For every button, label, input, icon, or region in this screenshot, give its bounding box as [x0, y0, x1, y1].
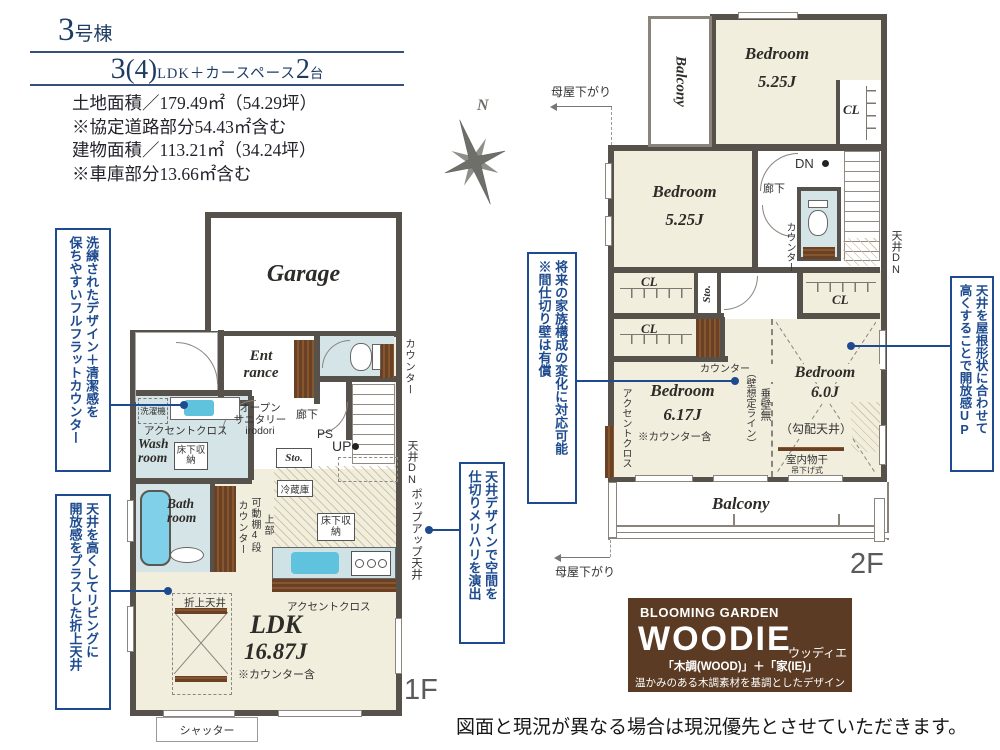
bedroom-d-label: Bedroom 6.0J	[770, 364, 880, 402]
compass-rose: N	[433, 94, 518, 212]
plan-summary: 3(4)LDK＋カースペース2台	[30, 53, 404, 85]
callout-roof-ceiling: 天井を屋根形状に合わせて 高くすることで開放感UP	[950, 276, 994, 472]
callout-line	[111, 590, 169, 592]
bedroom-b-label: Bedroom 5.25J	[622, 182, 747, 230]
stove-burner-icon	[378, 559, 387, 568]
moya-dashed-line	[611, 107, 612, 145]
logo-formula: 「木調(WOOD)」＋「家(IE)」	[628, 658, 852, 674]
toilet-bowl-icon	[350, 343, 372, 371]
sink-icon	[184, 400, 214, 416]
stairs-up-label: UP	[332, 438, 351, 454]
closet-a-label: CL	[843, 102, 860, 118]
bedroom-c-note: ※カウンター含	[638, 429, 712, 444]
callout-folded-ceiling: 天井を高くしてリビングに 開放感をプラスした折上天井	[55, 494, 111, 710]
area-info: 土地面積／179.49㎡（54.29坪） ※協定道路部分54.43㎡含む 建物面…	[72, 92, 317, 186]
ldk-note-label: ※カウンター含	[238, 666, 315, 682]
balcony-inner-rail	[614, 525, 882, 527]
callout-dot	[731, 377, 739, 385]
moya-dashed-line	[610, 540, 611, 557]
callout-dot	[180, 401, 188, 409]
sloped-ceiling-hatch	[843, 238, 877, 266]
window	[879, 425, 886, 465]
rooms-unit: LDK＋カースペース	[157, 66, 296, 82]
accent-wall-2f	[605, 426, 614, 478]
toilet-counter-1f	[380, 344, 394, 378]
bedroom-d-note: （勾配天井）	[780, 420, 852, 437]
callout-line	[852, 345, 950, 347]
storage-2f-label: Sto.	[701, 279, 715, 309]
window	[635, 475, 693, 482]
wall	[752, 145, 758, 273]
bedroom-a-label: Bedroom 5.25J	[722, 44, 832, 92]
moya-arrow-line	[554, 106, 612, 107]
closet-label: CL	[641, 274, 658, 290]
logo-tagline: 温かみのある木調素材を基調としたデザイン	[628, 675, 852, 690]
closet-rail	[806, 282, 876, 292]
counter-label-1f: カウンター	[403, 338, 418, 396]
window	[605, 216, 612, 246]
indoor-drying-bar	[778, 447, 844, 451]
land-area-note: ※協定道路部分54.43㎡含む	[72, 116, 317, 140]
compass-north-label: N	[476, 97, 490, 114]
rooms-paren: (4)	[126, 54, 157, 84]
moya-sagari-bottom-label: 母屋下がり	[555, 563, 615, 580]
counter-shelf-2f	[696, 319, 720, 357]
rooms-number: 3	[111, 52, 126, 85]
wall	[314, 336, 320, 404]
kitchen-accent-wall	[272, 579, 396, 592]
brand-logo-box: BLOOMING GARDEN WOODIE ウッディエ 「木調(WOOD)」＋…	[628, 598, 852, 692]
window	[278, 710, 362, 717]
hallway-label-1f: 廊下	[296, 406, 318, 422]
cars-unit: 台	[310, 66, 324, 81]
ldk-label: LDK	[250, 610, 302, 640]
bath-stool-icon	[170, 547, 204, 563]
window	[879, 330, 886, 370]
shelf-counter-label: カウンター	[234, 500, 249, 555]
balcony-post	[874, 498, 885, 542]
compass-main-star	[433, 109, 518, 212]
closet-rail	[866, 86, 876, 140]
garage-room: Garage	[205, 212, 402, 337]
stove-burner-icon	[355, 559, 364, 568]
indoor-drying-note: 吊下げ式	[791, 465, 823, 476]
wall-line-label: （壁想定ライン）	[742, 368, 757, 448]
kitchen-sink-icon	[291, 552, 339, 574]
closet-label: CL	[832, 292, 849, 308]
building-area: 建物面積／113.21㎡（34.24坪）	[72, 139, 317, 163]
arrow-left-icon	[550, 103, 557, 111]
header-divider-bottom	[30, 84, 404, 86]
callout-dot	[164, 587, 172, 595]
balcony-top: Balcony	[648, 16, 712, 147]
balcony-outer-rail	[608, 532, 889, 539]
callout-line	[429, 529, 459, 531]
wall	[136, 478, 252, 484]
balcony-tick	[733, 514, 735, 526]
callout-line	[111, 404, 185, 406]
balcony-top-label: Balcony	[672, 56, 689, 107]
popup-ceiling-label: ポップアップ天井	[408, 488, 424, 580]
staircase-1f	[352, 384, 395, 464]
brand-name: BLOOMING GARDEN	[640, 605, 779, 620]
shoe-cabinet	[294, 340, 314, 398]
building-suffix: 号棟	[75, 24, 113, 45]
balcony-tick	[838, 514, 840, 526]
ceiling-dn-label-2f: 天井DN	[888, 230, 904, 276]
toilet-counter-2f	[803, 247, 835, 259]
building-number: 3	[58, 12, 75, 48]
floorplan-page: 3号棟 3(4)LDK＋カースペース2台 土地面積／179.49㎡（54.29坪…	[0, 0, 1000, 750]
ps-label: PS	[317, 427, 333, 441]
disclaimer-text: 図面と現況が異なる場合は現況優先とさせていただきます。	[456, 712, 967, 739]
window	[713, 475, 768, 482]
entrance-label: Ent rance	[232, 348, 290, 382]
window	[395, 618, 402, 674]
storage-box-1f: Sto.	[276, 448, 312, 468]
movable-shelf-1f	[214, 486, 236, 572]
cars-number: 2	[296, 54, 310, 85]
toilet-bowl-icon	[808, 210, 828, 236]
land-area: 土地面積／179.49㎡（54.29坪）	[72, 92, 317, 116]
shelf-movable-label: 可動棚4段	[247, 497, 262, 553]
ceiling-dn-label-1f: 天井DN	[404, 440, 420, 486]
callout-dot	[425, 526, 433, 534]
stairs-up-dot	[352, 443, 359, 450]
window	[127, 606, 134, 652]
wall	[797, 267, 803, 319]
wall	[346, 382, 352, 440]
callout-line	[577, 380, 737, 382]
underfloor-storage-kitchen: 床下収納	[317, 513, 355, 541]
floor1-label: 1F	[404, 674, 438, 707]
arrow-left-icon	[554, 554, 561, 562]
floor2-label: 2F	[850, 548, 884, 581]
underfloor-storage-wash: 床下収納	[174, 442, 208, 470]
stairs-dn-label: DN	[795, 156, 814, 171]
wall	[797, 313, 880, 319]
callout-partition: 将来の家族構成の変化に対応可能 ※間仕切り壁は有償	[527, 252, 577, 504]
fridge-space: 冷蔵庫	[277, 480, 313, 497]
wash-room-label: Wash room	[138, 437, 169, 465]
toilet-tank-icon	[808, 200, 828, 208]
logo-wordmark: WOODIE	[638, 620, 792, 659]
counter-label-2f: カウンター	[782, 222, 797, 272]
raised-ceiling-label: 折上天井	[184, 595, 226, 610]
ldk-size-label: 16.87J	[244, 639, 307, 665]
garage-label: Garage	[267, 261, 340, 288]
window	[163, 710, 235, 717]
wall	[136, 390, 252, 396]
balcony-post	[608, 482, 617, 538]
closet-label: CL	[641, 321, 658, 337]
wall	[612, 267, 880, 273]
accent-cloth-label-2f: アクセントクロス	[618, 388, 633, 468]
callout-full-flat-counter: 洗練されたデザイン＋清潔感を 保ちやすいフルフラットカウンター	[55, 228, 111, 472]
window	[127, 500, 134, 542]
window	[738, 12, 798, 19]
hallway-label-2f: 廊下	[763, 180, 785, 196]
stove-icon	[351, 551, 391, 576]
toilet-tank-icon	[372, 344, 381, 370]
window	[788, 475, 843, 482]
raised-ceiling-cross	[174, 612, 228, 674]
ceiling-beam	[175, 676, 227, 682]
callout-dot	[847, 342, 855, 350]
building-area-note: ※車庫部分13.66㎡含む	[72, 163, 317, 187]
stairs-dn-dot	[822, 160, 829, 167]
wall	[720, 317, 725, 359]
stove-burner-icon	[367, 559, 376, 568]
moya-arrow-line	[558, 557, 610, 558]
window	[605, 163, 612, 199]
ceiling-dn-zone	[338, 457, 398, 482]
balcony-bottom-label: Balcony	[712, 494, 770, 514]
callout-ceiling-design: 天井デザインで空間を 仕切りメリハリを演出	[459, 462, 505, 644]
building-title: 3号棟	[58, 12, 113, 49]
moya-sagari-top-label: 母屋下がり	[551, 83, 611, 100]
shelf-upper-label: 上部	[260, 514, 275, 536]
bath-room-label: Bath room	[167, 497, 196, 525]
open-sanitary-label: オープン サニタリー irodori	[230, 403, 290, 438]
bedroom-c-label: Bedroom 6.17J	[625, 381, 740, 425]
shutter-label: シャッター	[156, 717, 258, 742]
washer-space: 洗濯機	[138, 398, 168, 424]
